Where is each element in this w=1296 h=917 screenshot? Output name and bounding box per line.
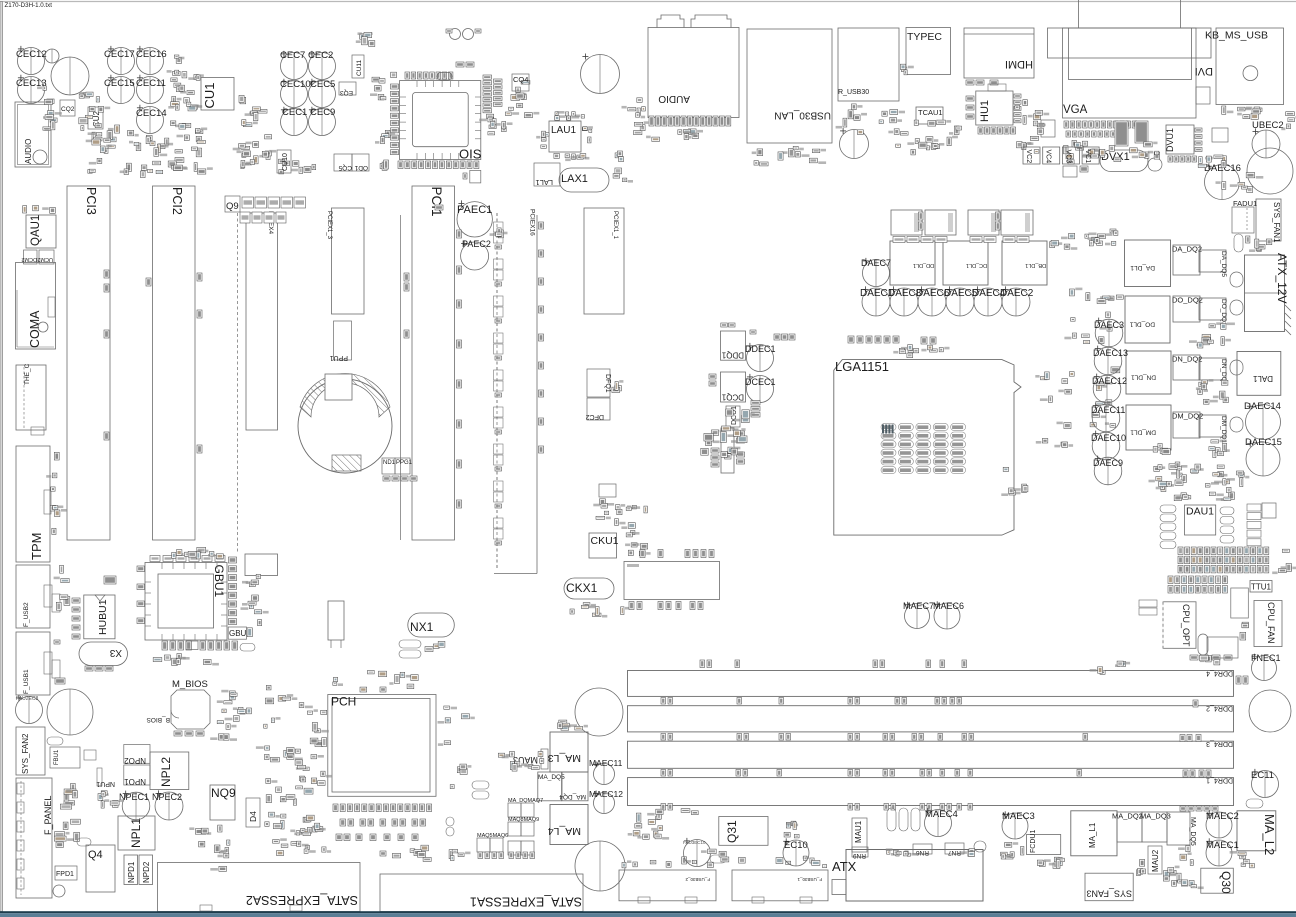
svg-text:HU1: HU1 [979, 100, 991, 122]
svg-text:DDR4_2: DDR4_2 [1206, 705, 1233, 712]
svg-text:PCI2: PCI2 [170, 187, 184, 215]
svg-text:EC10: EC10 [784, 840, 808, 851]
svg-text:NPL2: NPL2 [159, 757, 173, 787]
svg-text:DM_DL1: DM_DL1 [1130, 429, 1156, 436]
svg-text:PPG1: PPG1 [396, 460, 413, 466]
svg-text:PCIEX1_1: PCIEX1_1 [612, 211, 618, 240]
svg-text:CQ5: CQ5 [338, 164, 352, 171]
svg-text:CEC14: CEC14 [136, 108, 167, 119]
svg-text:DAEC9: DAEC9 [1093, 458, 1123, 468]
svg-text:NPL1: NPL1 [129, 818, 143, 848]
svg-text:F_USB30_2: F_USB30_2 [685, 877, 710, 882]
svg-text:GBU1: GBU1 [212, 565, 226, 598]
svg-text:B_BIOS: B_BIOS [146, 716, 170, 723]
svg-text:Z170-D3H-1.0.txt: Z170-D3H-1.0.txt [5, 2, 53, 9]
svg-text:MA_DQ5: MA_DQ5 [538, 774, 565, 781]
svg-text:DD_DL1: DD_DL1 [913, 262, 934, 268]
svg-text:PCH: PCH [331, 695, 356, 709]
svg-text:LAX1: LAX1 [561, 173, 588, 185]
svg-text:HUBU1: HUBU1 [97, 599, 109, 635]
svg-text:MAEC1: MAEC1 [1206, 840, 1239, 851]
svg-text:Q9: Q9 [226, 201, 239, 212]
svg-text:PPU1: PPU1 [330, 354, 348, 361]
svg-text:DA_DQ5: DA_DQ5 [1220, 251, 1227, 277]
svg-text:DN_DQ2: DN_DQ2 [1172, 355, 1202, 364]
svg-text:MAEC6: MAEC6 [933, 601, 964, 611]
svg-text:NX1: NX1 [410, 620, 434, 634]
svg-text:TYPEC: TYPEC [907, 31, 942, 43]
svg-text:ATX: ATX [832, 859, 857, 874]
svg-text:RN7: RN7 [948, 849, 961, 856]
svg-text:Q31: Q31 [725, 820, 739, 843]
svg-text:ATX_12V: ATX_12V [1275, 253, 1289, 303]
svg-text:VC4: VC4 [1045, 150, 1052, 164]
svg-text:MAU1: MAU1 [854, 820, 863, 843]
svg-text:AUDIO: AUDIO [24, 139, 33, 164]
svg-text:TTU1: TTU1 [1251, 583, 1272, 592]
svg-text:DAEC15: DAEC15 [1245, 437, 1282, 448]
svg-text:D4: D4 [248, 811, 258, 822]
svg-text:CEC7: CEC7 [280, 50, 305, 61]
svg-text:F_PANEL: F_PANEL [43, 796, 53, 835]
svg-text:DDR4_4: DDR4_4 [1206, 670, 1233, 677]
svg-text:NPO2: NPO2 [124, 756, 146, 765]
svg-text:MAQ8MAQ9: MAQ8MAQ9 [508, 817, 539, 823]
svg-text:PAEC2: PAEC2 [462, 239, 491, 249]
svg-text:CEC16: CEC16 [136, 49, 167, 60]
svg-text:DDR4_3: DDR4_3 [1206, 740, 1233, 747]
svg-text:DA_DQ2: DA_DQ2 [1172, 245, 1202, 254]
svg-text:COMA: COMA [28, 310, 42, 348]
svg-text:AUDIO: AUDIO [658, 93, 690, 104]
svg-text:DFQ1: DFQ1 [604, 374, 611, 393]
svg-text:DAU1: DAU1 [1186, 506, 1214, 518]
svg-text:PCI1: PCI1 [429, 187, 444, 217]
svg-text:USB30_LAN: USB30_LAN [774, 110, 831, 121]
svg-text:DDR4_1: DDR4_1 [1206, 777, 1233, 784]
svg-text:QAU1: QAU1 [30, 215, 42, 246]
svg-text:MA_L4: MA_L4 [548, 825, 581, 837]
svg-text:MA_DQ2: MA_DQ2 [1112, 812, 1143, 821]
svg-text:HDMI: HDMI [1005, 58, 1033, 70]
svg-text:VGA: VGA [1063, 104, 1088, 116]
svg-text:ND1: ND1 [383, 460, 396, 466]
svg-text:VC1: VC1 [1084, 150, 1091, 164]
svg-text:F_USB2: F_USB2 [23, 602, 30, 627]
svg-text:CEC2: CEC2 [308, 50, 333, 61]
svg-text:THE_C: THE_C [24, 363, 31, 385]
svg-text:DM_DQ1: DM_DQ1 [1220, 416, 1227, 443]
svg-text:CU11: CU11 [356, 59, 363, 76]
svg-text:R_USB30: R_USB30 [838, 89, 869, 96]
svg-text:FCDU1: FCDU1 [1030, 830, 1037, 853]
svg-text:DAEC14: DAEC14 [1244, 401, 1281, 412]
svg-text:CKU1: CKU1 [591, 535, 619, 547]
svg-text:CEC9: CEC9 [310, 107, 335, 118]
svg-text:VC2: VC2 [1025, 150, 1032, 164]
svg-text:NPD1: NPD1 [127, 861, 136, 883]
svg-text:DAL1: DAL1 [1252, 374, 1273, 383]
svg-text:VC3: VC3 [1064, 150, 1071, 164]
svg-text:DAEC11: DAEC11 [1091, 405, 1125, 415]
svg-text:DDEC1: DDEC1 [745, 344, 776, 354]
svg-text:DAEC10: DAEC10 [1091, 433, 1126, 443]
svg-text:OIS: OIS [459, 147, 482, 162]
svg-text:MA_DQ4: MA_DQ4 [559, 793, 586, 800]
svg-text:MA_L3: MA_L3 [548, 752, 581, 764]
svg-text:DC_DL1: DC_DL1 [966, 262, 987, 268]
svg-text:CEC17: CEC17 [104, 49, 135, 60]
svg-text:FAU3EC10: FAU3EC10 [683, 840, 706, 845]
svg-text:DAEC2: DAEC2 [1000, 288, 1034, 299]
svg-text:MAQ5MAQ6: MAQ5MAQ6 [477, 833, 508, 839]
svg-text:CU1: CU1 [202, 82, 217, 108]
svg-text:CEC13: CEC13 [16, 78, 47, 89]
svg-text:F_USB30_1: F_USB30_1 [797, 877, 822, 882]
svg-text:FNEC1: FNEC1 [1251, 653, 1281, 663]
svg-text:CKX1: CKX1 [566, 581, 598, 595]
svg-text:F_USB1: F_USB1 [23, 669, 30, 694]
svg-text:DCM2: DCM2 [21, 256, 37, 262]
svg-text:NQ9: NQ9 [211, 786, 236, 800]
svg-text:Q30: Q30 [1219, 871, 1233, 894]
svg-text:DM_DQ2: DM_DQ2 [1172, 412, 1203, 421]
svg-text:DVU1: DVU1 [1165, 128, 1175, 152]
svg-text:DA_DL1: DA_DL1 [1130, 264, 1155, 271]
svg-text:CPU_FAN: CPU_FAN [1266, 602, 1276, 644]
svg-text:NPD2: NPD2 [142, 861, 151, 883]
svg-text:CQ2: CQ2 [61, 106, 75, 113]
svg-text:EQ3: EQ3 [340, 89, 353, 96]
svg-text:PAEC1: PAEC1 [457, 204, 492, 216]
svg-text:MAU2: MAU2 [1151, 849, 1160, 872]
svg-text:SYS_FAN1: SYS_FAN1 [1272, 202, 1281, 243]
svg-text:CPU_OPT: CPU_OPT [1181, 604, 1191, 647]
svg-text:UBEC2: UBEC2 [1252, 120, 1284, 131]
svg-text:DDQ1: DDQ1 [721, 351, 744, 360]
svg-text:MAEC2: MAEC2 [1206, 811, 1239, 822]
svg-text:CEC1: CEC1 [282, 107, 307, 118]
svg-text:MAEC12: MAEC12 [589, 789, 623, 799]
svg-text:CEC5: CEC5 [310, 79, 335, 90]
svg-text:SYS_FAN3: SYS_FAN3 [1086, 889, 1132, 899]
svg-text:DO_DL1: DO_DL1 [1129, 321, 1155, 328]
svg-text:MAEC4: MAEC4 [925, 809, 958, 820]
svg-text:MAEC11: MAEC11 [589, 758, 623, 768]
svg-text:LGA1151: LGA1151 [835, 359, 889, 374]
svg-text:DAEC7: DAEC7 [861, 258, 891, 268]
svg-text:PCI3: PCI3 [84, 187, 98, 215]
svg-text:TPM: TPM [29, 533, 44, 560]
svg-text:M_BIOS: M_BIOS [172, 679, 208, 690]
svg-text:DO_DQ3: DO_DQ3 [1220, 299, 1227, 326]
svg-text:X3: X3 [109, 647, 122, 658]
svg-text:DN_DL1: DN_DL1 [1131, 374, 1156, 381]
svg-text:UCM2: UCM2 [37, 256, 53, 262]
svg-text:CEC11: CEC11 [136, 78, 166, 89]
svg-text:MA_DQ3: MA_DQ3 [1140, 812, 1171, 821]
svg-text:NPO1: NPO1 [124, 777, 146, 786]
svg-text:SATA_EXPRESSA1: SATA_EXPRESSA1 [470, 895, 582, 909]
svg-text:NPU1: NPU1 [96, 780, 115, 787]
svg-text:FPD1: FPD1 [56, 871, 74, 878]
svg-text:MA_L1: MA_L1 [1088, 822, 1097, 848]
svg-text:LAL1: LAL1 [535, 178, 553, 187]
svg-text:PCIEX16: PCIEX16 [529, 209, 536, 236]
svg-text:DAEC12: DAEC12 [1092, 376, 1127, 386]
svg-text:DAEC3: DAEC3 [1094, 320, 1124, 330]
svg-text:MAEC3: MAEC3 [1002, 811, 1035, 822]
svg-text:SYS_FAN2: SYS_FAN2 [21, 733, 30, 774]
svg-text:KB_MS_USB: KB_MS_USB [1205, 30, 1268, 42]
svg-text:MAEC7: MAEC7 [903, 601, 934, 611]
svg-text:DFC2: DFC2 [586, 413, 604, 420]
svg-text:OD1: OD1 [354, 164, 368, 171]
svg-text:CQ4: CQ4 [513, 75, 528, 84]
svg-text:NPEC2: NPEC2 [152, 792, 182, 802]
svg-text:CU10: CU10 [282, 153, 289, 171]
svg-text:CEC15: CEC15 [104, 78, 135, 89]
svg-text:FBU1: FBU1 [54, 749, 60, 765]
svg-text:FADU1: FADU1 [1233, 199, 1257, 208]
svg-text:DB_DL1: DB_DL1 [1025, 262, 1046, 268]
svg-text:FAU2EC8: FAU2EC8 [16, 696, 38, 702]
svg-text:MA_DQ5: MA_DQ5 [1189, 817, 1196, 846]
svg-text:DAEC13: DAEC13 [1093, 348, 1128, 358]
svg-text:TCAU1: TCAU1 [918, 108, 943, 117]
svg-text:MA_L2: MA_L2 [1262, 814, 1277, 855]
svg-text:DVI: DVI [1195, 65, 1213, 77]
svg-text:CEC10: CEC10 [280, 79, 311, 90]
svg-text:DCQ1: DCQ1 [721, 393, 744, 402]
svg-text:LAU1: LAU1 [551, 125, 576, 136]
svg-text:RN9: RN9 [853, 852, 866, 859]
svg-text:Q4: Q4 [88, 849, 103, 861]
svg-text:DCEC1: DCEC1 [745, 377, 776, 387]
svg-text:PCIEX1_3: PCIEX1_3 [326, 211, 332, 240]
svg-text:CEC12: CEC12 [16, 49, 47, 60]
svg-text:EC11: EC11 [1251, 770, 1274, 781]
svg-text:DO_DQ2: DO_DQ2 [1172, 296, 1203, 305]
